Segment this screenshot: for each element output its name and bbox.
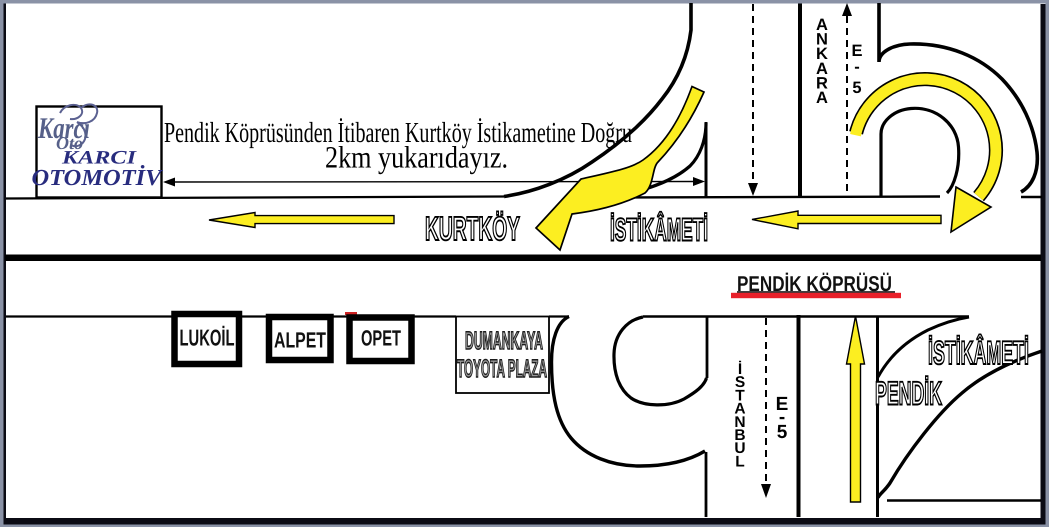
svg-text:ALPET: ALPET xyxy=(274,328,326,353)
svg-text:5: 5 xyxy=(852,79,861,97)
svg-text:5: 5 xyxy=(777,422,788,443)
svg-text:İSTİKÂMETİ: İSTİKÂMETİ xyxy=(610,212,708,248)
svg-text:-: - xyxy=(854,58,860,76)
svg-text:A: A xyxy=(816,89,828,107)
svg-text:2km yukarıdayız.: 2km yukarıdayız. xyxy=(325,140,508,175)
svg-text:LUKOİL: LUKOİL xyxy=(180,325,235,351)
svg-text:KURTKÖY: KURTKÖY xyxy=(425,211,520,248)
svg-text:PENDİK: PENDİK xyxy=(875,375,942,412)
svg-text:DUMANKAYA: DUMANKAYA xyxy=(465,327,543,355)
svg-text:OTOMOTİV: OTOMOTİV xyxy=(32,165,164,190)
svg-text:L: L xyxy=(735,453,744,470)
svg-text:OPET: OPET xyxy=(361,326,401,351)
svg-text:TOYOTA PLAZA: TOYOTA PLAZA xyxy=(457,355,547,383)
svg-text:İSTİKÂMETİ: İSTİKÂMETİ xyxy=(928,334,1029,371)
